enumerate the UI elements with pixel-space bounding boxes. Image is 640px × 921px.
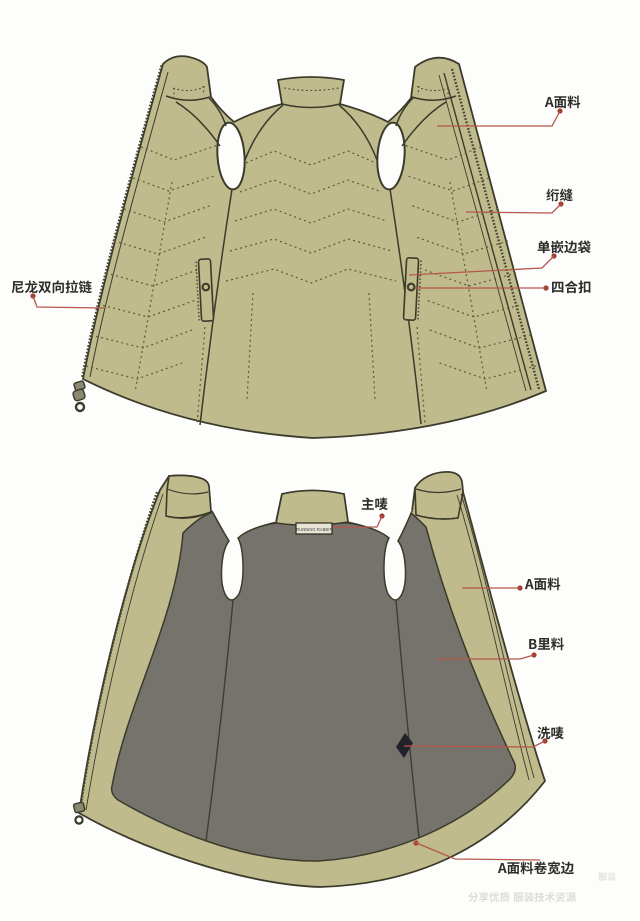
svg-text:RUNNING RABBIT: RUNNING RABBIT (296, 527, 332, 532)
